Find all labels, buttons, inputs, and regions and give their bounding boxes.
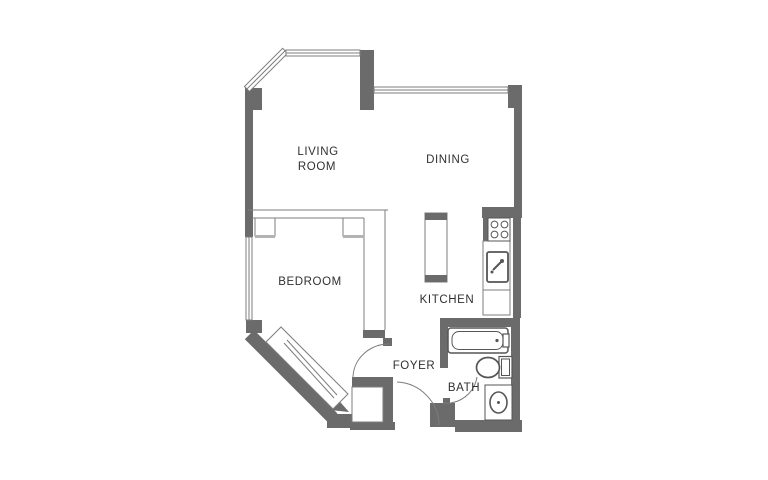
kitchen-counter-lower	[483, 290, 510, 315]
bath-label: BATH	[448, 382, 480, 394]
dining-label: DINING	[426, 154, 470, 166]
wall-left	[245, 110, 253, 237]
bedroom-door-arc	[353, 344, 390, 378]
wall-living-dining-divider	[360, 50, 374, 110]
bedroom-wall-tab-right	[343, 218, 364, 236]
wall-bedroom-cap	[363, 330, 385, 338]
stove-icon	[488, 218, 510, 241]
island-cap-top	[425, 213, 447, 220]
island-cap-bottom	[425, 275, 447, 282]
living-room-label-line2: ROOM	[298, 161, 336, 173]
wall-entry-stub	[443, 398, 450, 403]
living-room-window	[286, 50, 360, 56]
wall-entry-block	[430, 403, 455, 427]
wall-bay-left-block	[245, 88, 262, 110]
entry-closet	[352, 387, 383, 422]
foyer-label: FOYER	[393, 360, 436, 372]
toilet-icon	[477, 357, 513, 379]
dining-window	[374, 87, 508, 93]
wall-dining-right	[514, 108, 522, 207]
bathtub-icon	[448, 328, 509, 353]
stove-side-strip	[483, 218, 488, 241]
bay-window	[244, 48, 287, 91]
wall-kitchen-right	[513, 218, 521, 318]
wall-bath-top	[440, 318, 511, 327]
bedroom-wall-tab-left	[255, 218, 275, 236]
vanity-sink-icon	[485, 385, 512, 420]
kitchen-sink-icon	[487, 252, 508, 282]
wall-bath-left	[440, 327, 448, 368]
wall-closet-top-bar	[352, 377, 393, 387]
kitchen-island	[425, 213, 447, 282]
bedroom-window	[246, 237, 252, 320]
wall-dining-corner-block	[508, 85, 522, 108]
floor-plan: LIVING ROOM DINING BEDROOM KITCHEN FOYER…	[0, 0, 768, 480]
bedroom-label: BEDROOM	[278, 276, 342, 288]
wall-bedroom-stub	[383, 338, 392, 346]
living-room-label-line1: LIVING	[297, 146, 338, 158]
kitchen-label: KITCHEN	[420, 294, 475, 306]
wall-dining-kitchen-bar	[482, 207, 522, 218]
